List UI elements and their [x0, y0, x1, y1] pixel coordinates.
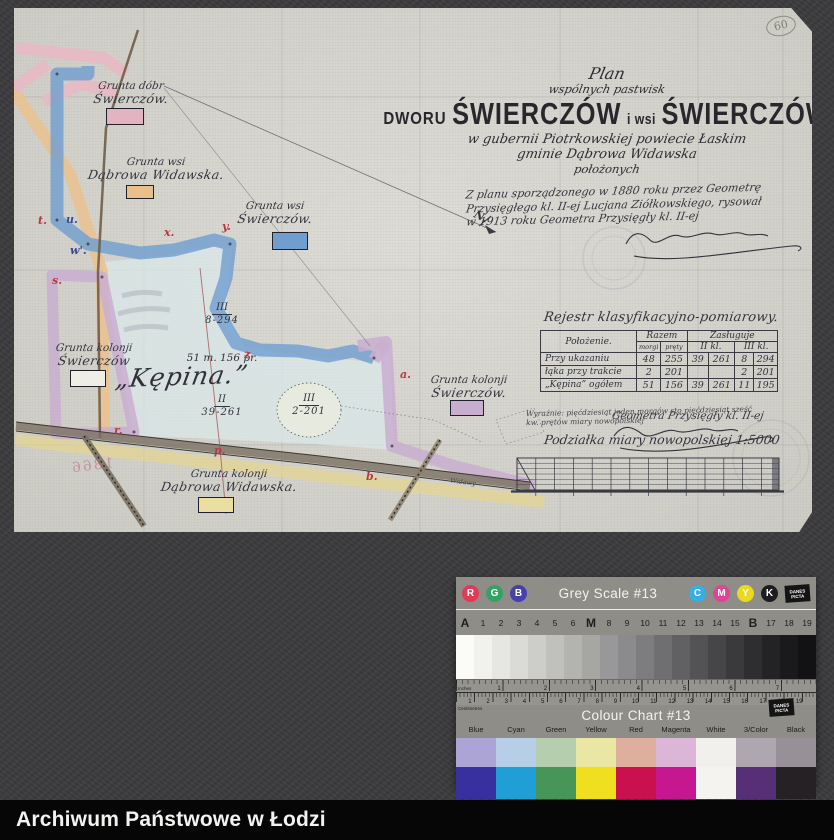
color-label: Blue — [456, 725, 496, 738]
index-label: 13 — [690, 618, 708, 628]
scale-caption: Podziałka miary nowopolskiej 1:5000 — [533, 432, 791, 447]
archive-caption-bar: Archiwum Państwowe w Łodzi — [0, 800, 834, 840]
index-label: 14 — [708, 618, 726, 628]
index-label: B — [744, 616, 762, 630]
color-patch-full — [696, 767, 736, 799]
col-place: Położenie. — [541, 331, 637, 353]
grey-patch — [708, 635, 726, 679]
grey-patch — [762, 635, 780, 679]
index-label: 9 — [618, 618, 636, 628]
centimetres-label: Centimetres — [458, 706, 482, 711]
grey-index-row: A123456M89101112131415B171819 — [456, 610, 816, 635]
color-label: Cyan — [496, 725, 536, 738]
color-label: Black — [776, 725, 816, 738]
swatch-purple — [450, 400, 484, 416]
col-breakdown: Zasługuje — [687, 331, 777, 342]
boundary-letter: b. — [366, 470, 378, 483]
grey-patch — [582, 635, 600, 679]
centimetres-ruler: 12345678910111213141516171819 — [456, 693, 816, 705]
inch-number: 7 — [776, 686, 779, 692]
label-grunta-wsi-swierczow: Grunta wsi Świerczów. — [220, 200, 330, 226]
grey-patch — [744, 635, 762, 679]
colour-chart-title: Colour Chart #13 — [456, 708, 816, 723]
boundary-letter: u. — [66, 213, 78, 226]
register-row: łąka przy trakcie 2 201 2 201 — [541, 366, 778, 379]
full-patch-row — [456, 767, 816, 799]
surveyor-title: Geometra Przysięgły kl. II-ej — [611, 410, 813, 422]
color-patch-light — [496, 738, 536, 767]
class-mark-III-8-294: III 8-294 — [200, 302, 244, 327]
grey-patch — [492, 635, 510, 679]
color-label: White — [696, 725, 736, 738]
boundary-letter: z. — [244, 348, 254, 361]
index-label: 1 — [474, 618, 492, 628]
color-patch-full — [576, 767, 616, 799]
inches-ruler: Inches 1234567 — [456, 680, 816, 693]
grey-patch — [600, 635, 618, 679]
title-name1: ŚWIERCZÓW — [452, 97, 621, 132]
title-block: Plan wspólnych pastwisk DWORU ŚWIERCZÓW … — [402, 64, 812, 176]
surveyor-signature — [626, 233, 801, 259]
index-label: 18 — [780, 618, 798, 628]
grey-patch — [726, 635, 744, 679]
color-label: Yellow — [576, 725, 616, 738]
grey-patch — [636, 635, 654, 679]
grey-patch — [564, 635, 582, 679]
color-patch-light — [736, 738, 776, 767]
boundary-letter: y. — [222, 220, 231, 233]
boundary-letter: s. — [52, 274, 62, 287]
register-row: Przy ukazaniu 48 255 39 261 8 294 — [541, 353, 778, 366]
title-script-plan: Plan — [400, 64, 814, 83]
index-label: 4 — [528, 618, 546, 628]
color-patch-full — [496, 767, 536, 799]
subtitle-gmina: gminie Dąbrowa Widawska — [401, 147, 814, 162]
r-circle: R — [462, 585, 479, 602]
label-kolonja-dabrowa: Grunta kolonji Dąbrowa Widawska. — [134, 468, 324, 494]
index-label: 6 — [564, 618, 582, 628]
title-name2: ŚWIERCZÓW — [661, 97, 830, 132]
grey-scale-header: RGB Grey Scale #13 CMYK DANES PICTA — [456, 577, 816, 610]
subtitle-polozonych: położonych — [401, 162, 813, 176]
grey-scale-title: Grey Scale #13 — [534, 586, 682, 601]
color-calibration-card: RGB Grey Scale #13 CMYK DANES PICTA A123… — [456, 577, 816, 786]
map-sheet: Plan wspólnych pastwisk DWORU ŚWIERCZÓW … — [14, 8, 812, 532]
swatch-white — [70, 370, 106, 387]
color-patch-light — [456, 738, 496, 767]
color-patch-full — [776, 767, 816, 799]
measurement-register: Rejestr klasyfikacyjno-pomiarowy. Położe… — [528, 310, 794, 392]
index-label: 8 — [600, 618, 618, 628]
title-script-pastures: wspólnych pastwisk — [401, 82, 814, 96]
c-circle: C — [689, 585, 706, 602]
color-patch-light — [616, 738, 656, 767]
color-patch-light — [576, 738, 616, 767]
label-kolonja-swierczow-right: Grunta kolonji Świerczów. — [414, 374, 524, 400]
index-label: 3 — [510, 618, 528, 628]
inch-number: 3 — [590, 686, 593, 692]
class-mark-III-2-201: III 2-201 — [277, 393, 341, 418]
swatch-yellow — [198, 497, 234, 513]
subtitle-gubernia: w gubernii Piotrkowskiej powiecie Łaskim — [401, 132, 814, 147]
index-label: 11 — [654, 618, 672, 628]
index-label: 5 — [546, 618, 564, 628]
index-label: 15 — [726, 618, 744, 628]
index-label: 2 — [492, 618, 510, 628]
parcel-name: „Kępina.” — [111, 360, 253, 394]
col-total: Razem — [637, 331, 687, 342]
color-patch-full — [736, 767, 776, 799]
inch-number: 5 — [683, 686, 686, 692]
grey-patch — [456, 635, 474, 679]
color-patch-full — [456, 767, 496, 799]
boundary-letter: x. — [164, 226, 174, 239]
grey-patch — [690, 635, 708, 679]
b-circle: B — [510, 585, 527, 602]
inch-number: 1 — [497, 686, 500, 692]
grey-patch — [546, 635, 564, 679]
label-grunta-dobr-swierczow: Grunta dóbr Świerczów. — [76, 80, 186, 106]
y-circle: Y — [737, 585, 754, 602]
swatch-pink — [106, 108, 144, 125]
color-column-labels: BlueCyanGreenYellowRedMagentaWhite3/Colo… — [456, 725, 816, 738]
main-title: DWORU ŚWIERCZÓW i wsi ŚWIERCZÓW — [414, 97, 799, 132]
title-prefix: DWORU — [383, 109, 446, 129]
danes-picta-logo: DANES PICTA — [784, 584, 810, 603]
class-mark-II-39-261: II 39-261 — [198, 394, 246, 419]
boundary-letter: w'. — [70, 244, 87, 257]
color-label: Magenta — [656, 725, 696, 738]
archive-photo-stage: Plan wspólnych pastwisk DWORU ŚWIERCZÓW … — [0, 0, 834, 840]
index-label: 19 — [798, 618, 816, 628]
inch-number: 6 — [729, 686, 732, 692]
boundary-letter: r. — [114, 424, 123, 437]
register-title: Rejestr klasyfikacyjno-pomiarowy. — [527, 310, 795, 325]
index-label: 10 — [636, 618, 654, 628]
index-label: 12 — [672, 618, 690, 628]
color-label: Green — [536, 725, 576, 738]
grey-patch — [798, 635, 816, 679]
cmyk-circles: CMYK — [689, 585, 778, 602]
boundary-letter: p. — [214, 444, 226, 457]
boundary-letter: t. — [38, 214, 47, 227]
index-label: M — [582, 616, 600, 630]
grey-patch — [654, 635, 672, 679]
archive-name: Archiwum Państwowe w Łodzi — [16, 808, 326, 832]
col-cls3: III kl. — [735, 342, 778, 353]
rgb-circles: RGB — [462, 585, 527, 602]
color-patch-full — [656, 767, 696, 799]
swatch-blue — [272, 232, 308, 250]
register-total-row: „Kępina” ogółem 51 156 39 261 11 195 — [541, 379, 778, 392]
color-patch-full — [616, 767, 656, 799]
grey-patch — [618, 635, 636, 679]
color-patch-light — [776, 738, 816, 767]
inches-label: Inches — [458, 686, 471, 691]
k-circle: K — [761, 585, 778, 602]
color-label: 3/Color — [736, 725, 776, 738]
col-cls2: II kl. — [687, 342, 735, 353]
colour-chart-header: Centimetres Colour Chart #13 DANES PICTA — [456, 705, 816, 725]
grey-scale-strip — [456, 635, 816, 679]
title-mid: i wsi — [627, 111, 656, 128]
grey-patch — [780, 635, 798, 679]
inch-number: 2 — [544, 686, 547, 692]
swatch-orange — [126, 185, 154, 199]
m-circle: M — [713, 585, 730, 602]
grey-patch — [528, 635, 546, 679]
boundary-letter: a. — [400, 368, 411, 381]
color-label: Red — [616, 725, 656, 738]
register-table: Położenie. Razem Zasługuje morgi pręty I… — [540, 330, 778, 392]
light-patch-row — [456, 738, 816, 767]
index-label: A — [456, 616, 474, 630]
index-label: 17 — [762, 618, 780, 628]
color-patch-light — [656, 738, 696, 767]
color-patch-light — [536, 738, 576, 767]
ruler: Inches 1234567 1234567891011121314151617… — [456, 679, 816, 705]
danes-picta-logo-2: DANES PICTA — [768, 698, 794, 717]
color-patch-full — [536, 767, 576, 799]
inch-number: 4 — [637, 686, 640, 692]
color-patch-light — [696, 738, 736, 767]
grey-patch — [672, 635, 690, 679]
grey-patch — [474, 635, 492, 679]
grey-patch — [510, 635, 528, 679]
g-circle: G — [486, 585, 503, 602]
label-grunta-wsi-dabrowa: Grunta wsi Dąbrowa Widawska. — [76, 156, 236, 182]
